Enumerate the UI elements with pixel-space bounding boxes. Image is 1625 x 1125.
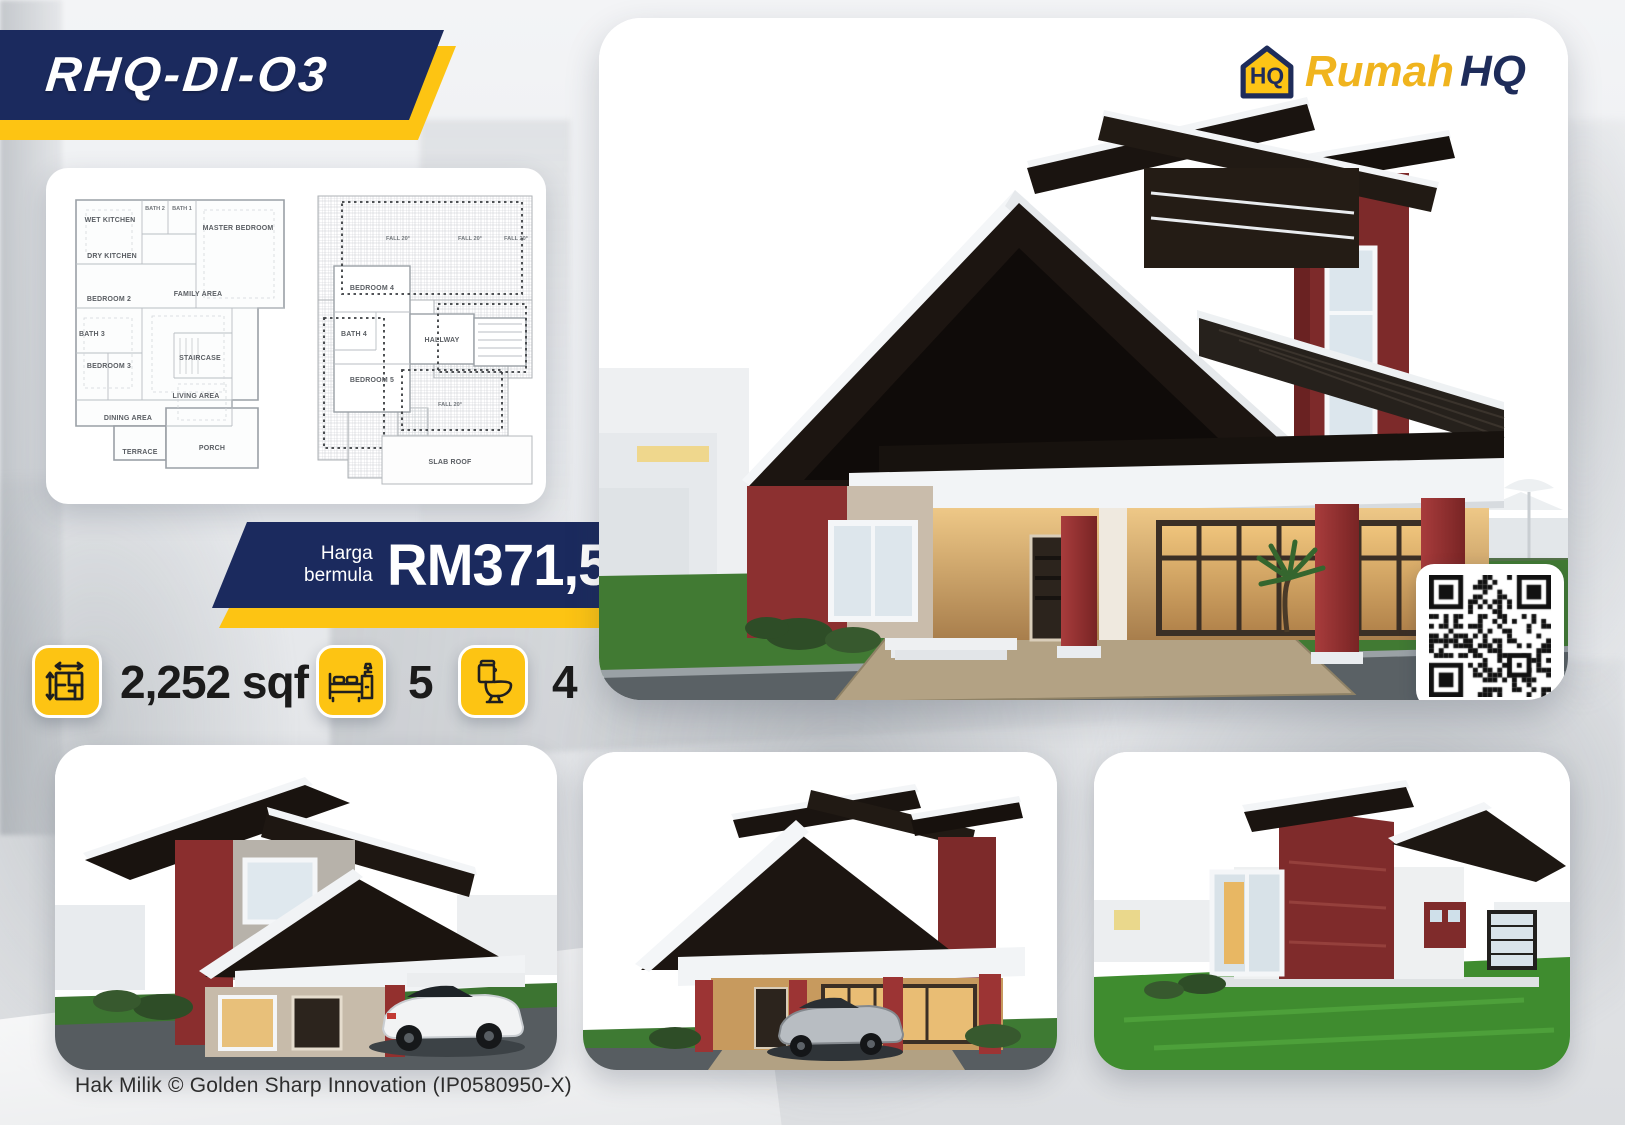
bathrooms-tile — [458, 645, 528, 718]
floorplan-drawing: WET KITCHEN DRY KITCHEN BATH 2 BATH 1 MA… — [46, 168, 546, 504]
copyright-text: Hak Milik © Golden Sharp Innovation (IP0… — [75, 1074, 572, 1098]
floor-area-value: 2,252 sqf — [120, 655, 308, 709]
left-wing — [747, 486, 933, 638]
svg-text:DRY KITCHEN: DRY KITCHEN — [87, 253, 137, 260]
porch-windows — [1159, 523, 1459, 633]
svg-text:BATH 4: BATH 4 — [341, 331, 367, 338]
svg-text:HQ: HQ — [1250, 62, 1284, 88]
svg-text:FALL 20°: FALL 20° — [438, 402, 462, 408]
thumbnail-3-render — [1094, 752, 1570, 1070]
floor-area-tile — [32, 645, 102, 718]
thumbnail-2-render — [583, 752, 1057, 1070]
svg-text:HALLWAY: HALLWAY — [425, 337, 460, 344]
toilet-icon — [471, 658, 515, 706]
ground-floor-plan — [76, 200, 284, 468]
svg-text:BEDROOM 3: BEDROOM 3 — [87, 363, 131, 370]
svg-text:BEDROOM 5: BEDROOM 5 — [350, 377, 394, 384]
svg-text:MASTER BEDROOM: MASTER BEDROOM — [203, 225, 274, 232]
thumbnail-corner-view[interactable] — [55, 745, 557, 1070]
svg-text:DINING AREA: DINING AREA — [104, 415, 152, 422]
svg-text:BATH 2: BATH 2 — [145, 206, 165, 212]
qr-card — [1416, 564, 1564, 700]
bathrooms-value: 4 — [552, 655, 577, 709]
svg-text:BEDROOM 2: BEDROOM 2 — [87, 296, 131, 303]
thumbnail-rear-view[interactable] — [1094, 752, 1570, 1070]
price-badge-accent — [219, 608, 620, 628]
logo-text-primary: Rumah — [1305, 47, 1454, 97]
svg-text:BEDROOM 4: BEDROOM 4 — [350, 285, 394, 292]
floorplan-card: WET KITCHEN DRY KITCHEN BATH 2 BATH 1 MA… — [46, 168, 546, 504]
rumahhq-logo-icon: HQ — [1239, 44, 1295, 100]
svg-text:BATH 3: BATH 3 — [79, 331, 105, 338]
feature-bathrooms: 4 — [458, 645, 577, 718]
bedrooms-tile — [316, 645, 386, 718]
bedrooms-value: 5 — [408, 655, 433, 709]
svg-text:TERRACE: TERRACE — [122, 449, 157, 456]
flyer-page: RHQ-DI-O3 — [0, 0, 1625, 1125]
svg-text:FALL 20°: FALL 20° — [504, 236, 528, 242]
thumbnail-front-view[interactable] — [583, 752, 1057, 1070]
floor-area-icon — [43, 658, 91, 706]
main-render-card: HQ Rumah HQ — [599, 18, 1568, 700]
svg-text:PORCH: PORCH — [199, 445, 225, 452]
svg-text:WET KITCHEN: WET KITCHEN — [85, 217, 136, 224]
thumbnail-1-render — [55, 745, 557, 1070]
model-code: RHQ-DI-O3 — [43, 47, 332, 103]
svg-text:LIVING AREA: LIVING AREA — [172, 393, 219, 400]
qr-code — [1429, 575, 1551, 697]
price-label: Harga bermula — [304, 543, 373, 587]
tower-window — [1327, 248, 1375, 443]
logo-text-secondary: HQ — [1460, 47, 1526, 97]
model-ribbon: RHQ-DI-O3 — [0, 30, 450, 120]
svg-text:BATH 1: BATH 1 — [172, 206, 192, 212]
feature-bedrooms: 5 — [316, 645, 433, 718]
feature-floor-area: 2,252 sqf — [32, 645, 308, 718]
brand-logo: HQ Rumah HQ — [1239, 44, 1526, 100]
svg-text:STAIRCASE: STAIRCASE — [179, 355, 221, 362]
svg-text:FALL 20°: FALL 20° — [458, 236, 482, 242]
svg-text:FAMILY AREA: FAMILY AREA — [174, 291, 223, 298]
svg-text:SLAB ROOF: SLAB ROOF — [428, 459, 472, 466]
bed-icon — [325, 660, 377, 704]
svg-text:FALL 20°: FALL 20° — [386, 236, 410, 242]
price-badge: Harga bermula RM371,580 — [212, 522, 620, 608]
